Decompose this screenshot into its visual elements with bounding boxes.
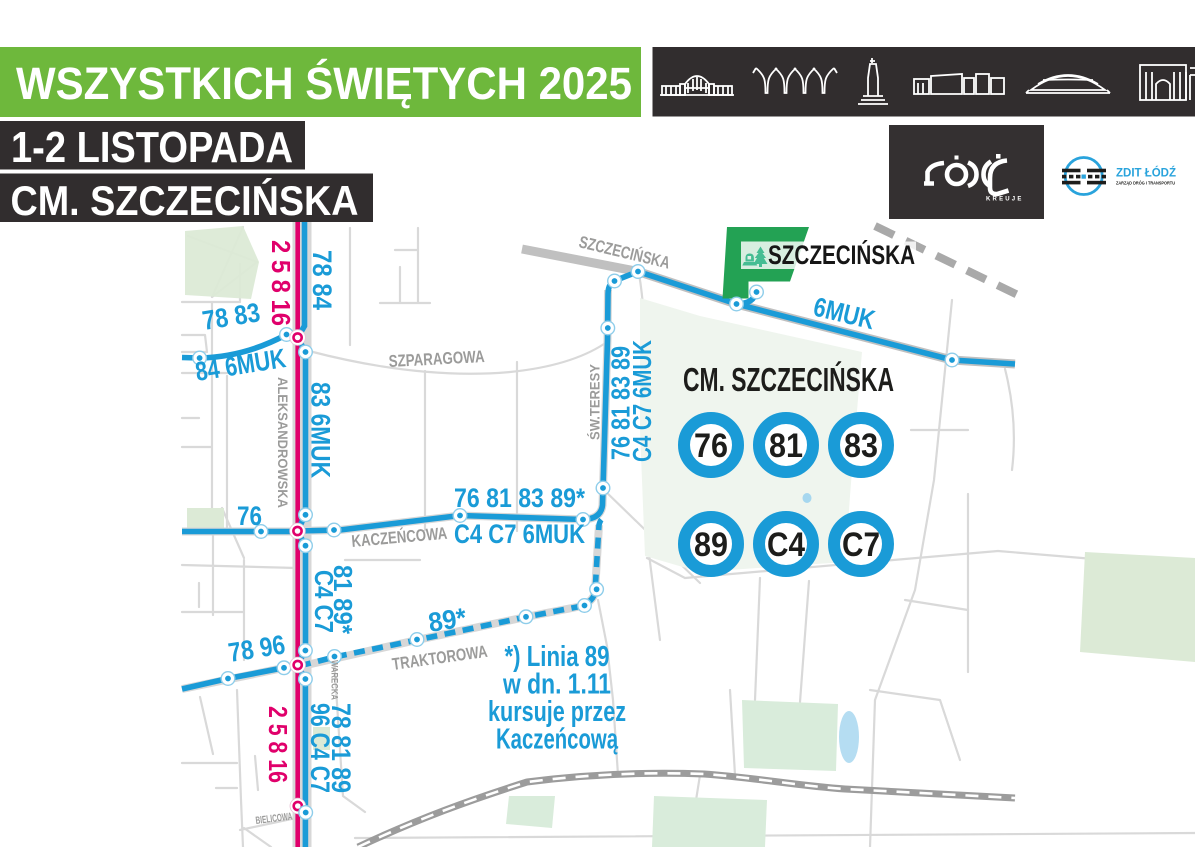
svg-text:78 81 89: 78 81 89 bbox=[326, 703, 356, 793]
svg-text:2 5 8 16: 2 5 8 16 bbox=[263, 706, 293, 783]
svg-text:89*: 89* bbox=[426, 602, 469, 638]
svg-text:KREUJE: KREUJE bbox=[986, 197, 1024, 203]
svg-text:78 84: 78 84 bbox=[307, 250, 337, 310]
svg-text:Kaczeńcową: Kaczeńcową bbox=[496, 724, 619, 756]
svg-text:ZDIT ŁÓDŹ: ZDIT ŁÓDŹ bbox=[1116, 167, 1176, 180]
svg-text:1-2 LISTOPADA: 1-2 LISTOPADA bbox=[11, 123, 293, 172]
svg-text:C7: C7 bbox=[842, 526, 880, 564]
svg-text:83: 83 bbox=[844, 427, 878, 465]
svg-text:89: 89 bbox=[694, 526, 728, 564]
svg-text:C4: C4 bbox=[767, 526, 805, 564]
svg-text:SZCZECIŃSKA: SZCZECIŃSKA bbox=[768, 239, 915, 270]
svg-text:C4 C7: C4 C7 bbox=[309, 570, 339, 633]
svg-text:ŚW.TERESY: ŚW.TERESY bbox=[588, 364, 603, 440]
svg-text:WARECKA: WARECKA bbox=[330, 660, 340, 700]
svg-text:83 6MUK: 83 6MUK bbox=[306, 382, 336, 478]
svg-text:CM. SZCZECIŃSKA: CM. SZCZECIŃSKA bbox=[11, 177, 359, 224]
svg-text:2 5 8 16: 2 5 8 16 bbox=[266, 240, 296, 326]
svg-text:76 81 83 89*: 76 81 83 89* bbox=[454, 483, 585, 513]
svg-text:WSZYSTKICH ŚWIĘTYCH 2025: WSZYSTKICH ŚWIĘTYCH 2025 bbox=[16, 58, 632, 109]
svg-text:C4 C7 6MUK: C4 C7 6MUK bbox=[454, 519, 585, 549]
svg-text:CM. SZCZECIŃSKA: CM. SZCZECIŃSKA bbox=[683, 361, 894, 398]
svg-text:76: 76 bbox=[694, 427, 728, 465]
svg-text:ZARZĄD DRÓG I TRANSPORTU: ZARZĄD DRÓG I TRANSPORTU bbox=[1116, 179, 1176, 186]
svg-text:76: 76 bbox=[237, 501, 262, 531]
svg-text:81: 81 bbox=[769, 427, 803, 465]
svg-text:C4 C7 6MUK: C4 C7 6MUK bbox=[627, 340, 657, 462]
svg-text:ALEKSANDROWSKA: ALEKSANDROWSKA bbox=[275, 377, 290, 508]
